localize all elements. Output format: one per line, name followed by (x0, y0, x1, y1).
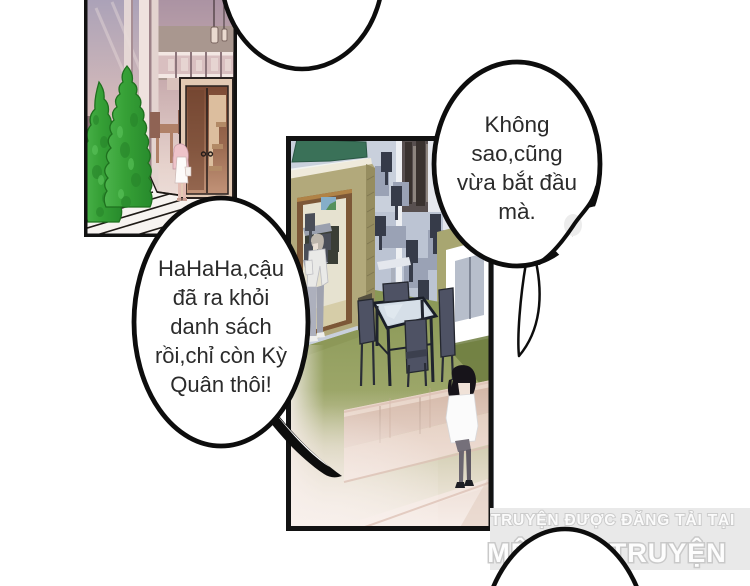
svg-text:HaHaHa,cậu: HaHaHa,cậu (158, 256, 284, 281)
svg-text:danh sách: danh sách (170, 314, 272, 339)
svg-text:rồi,chỉ còn Kỳ: rồi,chỉ còn Kỳ (155, 343, 287, 368)
svg-text:TRUYỆN ĐƯỢC ĐĂNG TẢI TẠI: TRUYỆN ĐƯỢC ĐĂNG TẢI TẠI (491, 511, 735, 529)
svg-text:đã ra khỏi: đã ra khỏi (173, 285, 270, 310)
svg-text:mà.: mà. (498, 199, 536, 224)
svg-text:vừa bắt đầu: vừa bắt đầu (457, 170, 577, 195)
svg-text:sao,cũng: sao,cũng (471, 141, 562, 166)
svg-text:Quân thôi!: Quân thôi! (170, 372, 272, 397)
svg-text:Không: Không (484, 112, 549, 137)
